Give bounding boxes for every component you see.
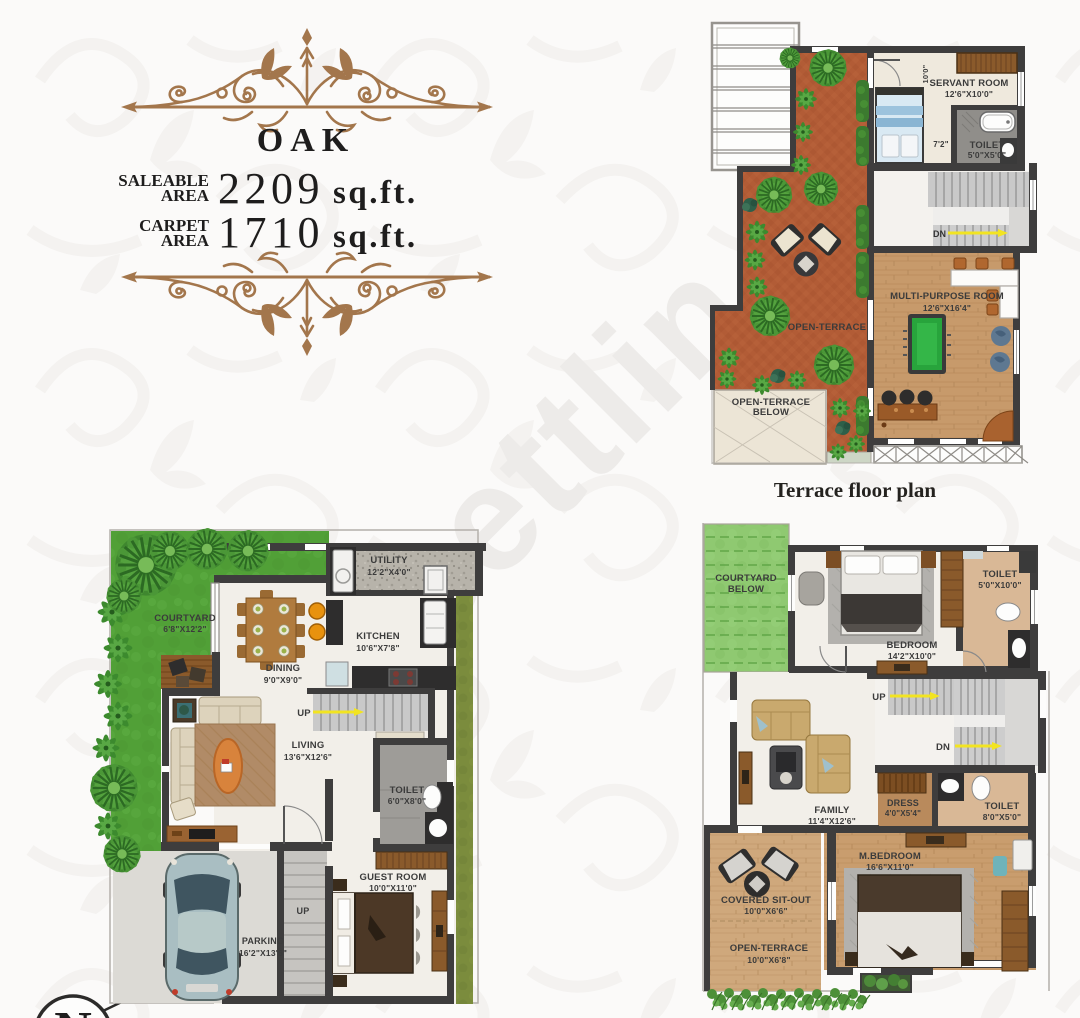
svg-text:DN: DN: [936, 742, 950, 753]
svg-text:5'0"X5'0": 5'0"X5'0": [968, 150, 1006, 160]
svg-text:2209: 2209: [218, 164, 324, 213]
svg-text:OPEN-TERRACE: OPEN-TERRACE: [730, 943, 808, 954]
svg-text:PARKING: PARKING: [242, 936, 284, 946]
svg-text:9'0"X9'0": 9'0"X9'0": [264, 675, 302, 685]
svg-text:BELOW: BELOW: [728, 584, 764, 595]
svg-text:4'0"X5'4": 4'0"X5'4": [885, 809, 921, 818]
svg-text:COURTYARD: COURTYARD: [154, 613, 216, 624]
svg-text:AREA: AREA: [161, 186, 210, 205]
svg-text:6'0"X8'0": 6'0"X8'0": [388, 796, 426, 806]
svg-text:8'0"X5'0": 8'0"X5'0": [983, 812, 1021, 822]
svg-text:13'6"X12'6": 13'6"X12'6": [284, 752, 332, 762]
svg-text:UTILITY: UTILITY: [370, 555, 408, 566]
svg-text:DINING: DINING: [266, 663, 300, 674]
svg-text:6'8"X12'2": 6'8"X12'2": [163, 624, 206, 634]
svg-text:1710: 1710: [218, 208, 324, 257]
svg-text:10'0"X6'8": 10'0"X6'8": [747, 955, 790, 965]
svg-text:TOILET: TOILET: [985, 801, 1020, 812]
svg-text:TOILET: TOILET: [390, 785, 425, 796]
svg-text:FAMILY: FAMILY: [814, 805, 850, 816]
svg-text:N: N: [54, 1002, 92, 1018]
svg-text:DN: DN: [933, 229, 946, 239]
svg-text:COURTYARD: COURTYARD: [715, 573, 777, 584]
svg-text:12'6"X10'0": 12'6"X10'0": [945, 89, 993, 99]
svg-text:14'2"X10'0": 14'2"X10'0": [888, 651, 936, 661]
svg-text:GUEST ROOM: GUEST ROOM: [360, 872, 427, 883]
svg-text:BELOW: BELOW: [753, 407, 789, 418]
svg-text:AREA: AREA: [161, 231, 210, 250]
svg-text:M.BEDROOM: M.BEDROOM: [859, 851, 921, 862]
svg-text:7'2": 7'2": [933, 140, 948, 149]
svg-text:OAK: OAK: [257, 122, 355, 159]
svg-text:TOILET: TOILET: [983, 569, 1018, 580]
svg-text:10'0"X6'6": 10'0"X6'6": [744, 906, 787, 916]
svg-text:16'2"X13'6": 16'2"X13'6": [239, 948, 287, 958]
svg-text:SERVANT ROOM: SERVANT ROOM: [929, 78, 1008, 89]
svg-text:sq.ft.: sq.ft.: [333, 175, 418, 211]
svg-text:COVERED SIT-OUT: COVERED SIT-OUT: [721, 895, 811, 906]
svg-text:10'0": 10'0": [921, 64, 930, 83]
svg-text:LIVING: LIVING: [292, 740, 325, 751]
svg-text:12'2"X4'0": 12'2"X4'0": [367, 567, 410, 577]
svg-text:UP: UP: [297, 906, 310, 916]
svg-text:12'6"X16'4": 12'6"X16'4": [923, 303, 971, 313]
svg-text:10'6"X7'8": 10'6"X7'8": [356, 643, 399, 653]
svg-text:16'6"X11'0": 16'6"X11'0": [866, 862, 914, 872]
svg-text:KITCHEN: KITCHEN: [356, 631, 400, 642]
svg-text:10'0"X11'0": 10'0"X11'0": [369, 883, 417, 893]
svg-text:UP: UP: [872, 692, 886, 703]
svg-text:sq.ft.: sq.ft.: [333, 219, 418, 255]
svg-text:11'4"X12'6": 11'4"X12'6": [808, 816, 856, 826]
svg-text:OPEN-TERRACE: OPEN-TERRACE: [788, 322, 866, 333]
svg-text:5'0"X10'0": 5'0"X10'0": [978, 580, 1021, 590]
svg-text:MULTI-PURPOSE ROOM: MULTI-PURPOSE ROOM: [890, 291, 1004, 302]
svg-text:DRESS: DRESS: [887, 798, 919, 808]
svg-text:UP: UP: [297, 708, 311, 719]
svg-text:BEDROOM: BEDROOM: [886, 640, 937, 651]
